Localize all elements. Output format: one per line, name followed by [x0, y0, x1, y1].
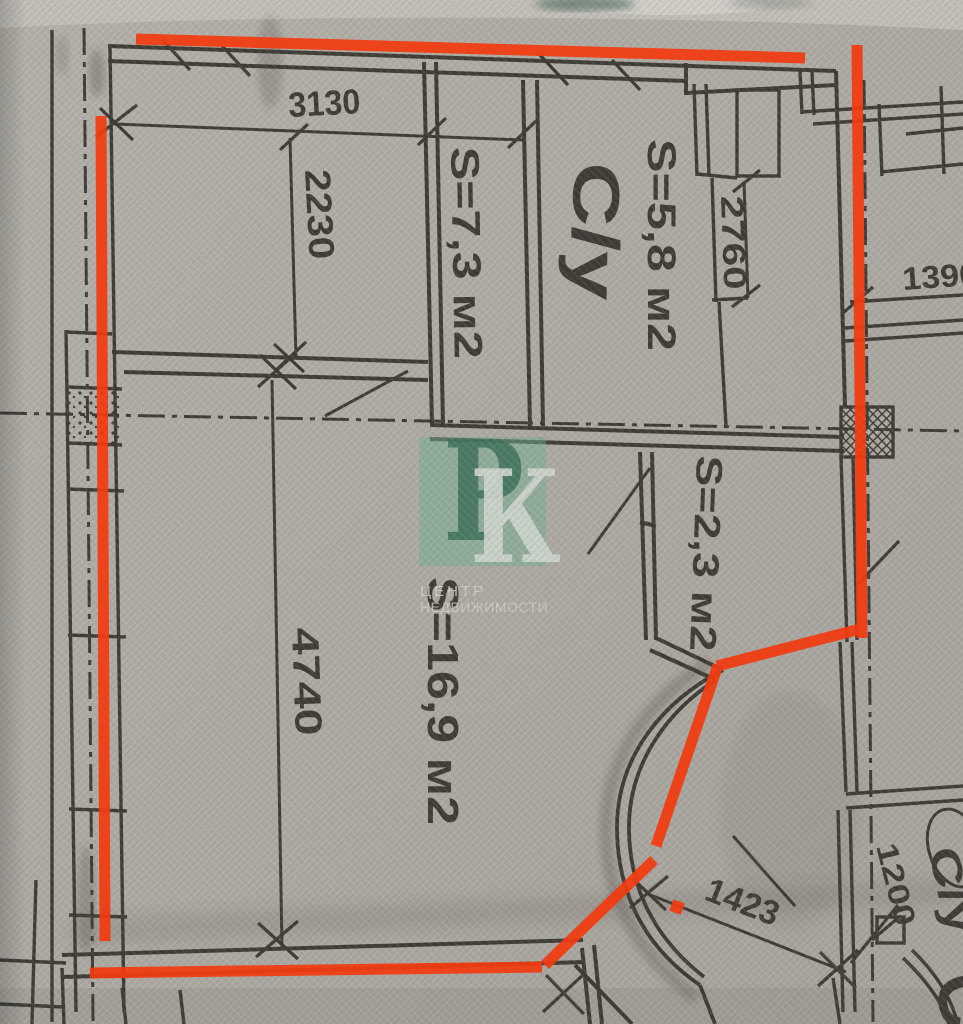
floorplan-svg: 3130 2230 S=7,3 м2 С/у S=5,8 м2 2760 139…: [0, 0, 963, 1024]
left-vignette: [0, 0, 26, 1024]
floorplan-photo: 3130 2230 S=7,3 м2 С/у S=5,8 м2 2760 139…: [0, 0, 963, 1024]
red-line-left: [101, 116, 105, 941]
weave-overlay-2: [0, 0, 963, 1024]
photo-texture: [0, 0, 963, 1024]
red-line-right: [857, 45, 862, 638]
red-line-bottom: [90, 967, 542, 973]
